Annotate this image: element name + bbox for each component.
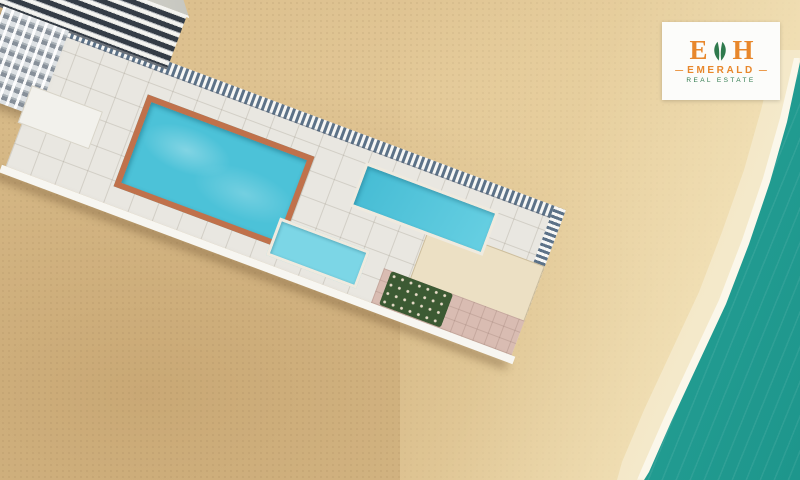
logo-monogram: E H: [689, 37, 752, 64]
logo-brand-row: — EMERALD —: [675, 66, 767, 76]
resort-aerial-render: E H — EMERALD — REAL ESTATE: [0, 0, 800, 480]
logo-brand-name: EMERALD: [687, 66, 755, 76]
logo-letter-e: E: [689, 37, 706, 64]
logo-tagline: REAL ESTATE: [686, 78, 755, 85]
logo-dash-right: —: [759, 67, 767, 75]
watermark-logo: E H — EMERALD — REAL ESTATE: [662, 22, 780, 100]
logo-dash-left: —: [675, 67, 683, 75]
leaf-icon: [708, 38, 732, 64]
logo-letter-h: H: [733, 37, 753, 64]
